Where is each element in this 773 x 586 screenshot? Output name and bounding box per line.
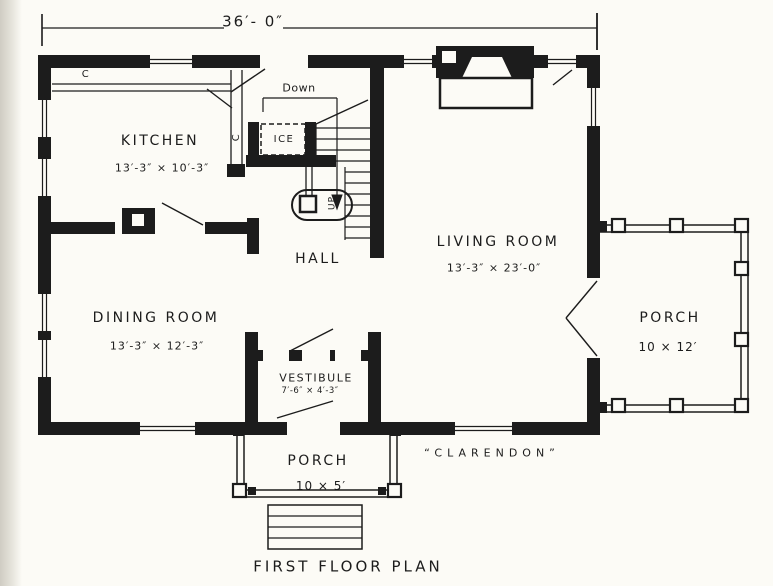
- vestibule-dims: 7′-6″ × 4′-3″: [281, 387, 338, 396]
- down-label: Down: [282, 83, 315, 94]
- dimension-line: [42, 13, 597, 50]
- vestibule-label: VESTIBULE: [279, 373, 353, 384]
- stair-break-line: [316, 100, 368, 124]
- hall-label: HALL: [295, 252, 341, 266]
- kitchen-dining-wall: [205, 222, 247, 234]
- house-name-caption: “CLARENDON”: [424, 448, 560, 459]
- vestibule-door-opening: [263, 350, 289, 361]
- window: [38, 159, 51, 196]
- porch-post: [233, 428, 244, 436]
- porch-post: [735, 333, 748, 346]
- porch-post: [233, 484, 246, 497]
- front-porch-label: PORCH: [287, 454, 348, 468]
- window: [38, 294, 51, 331]
- living-room-dims: 13′-3″ × 23′-0″: [447, 263, 541, 274]
- porch-post: [735, 262, 748, 275]
- porch-post: [735, 219, 748, 232]
- floor-plan-page: 36′- 0″ KITCHEN 13′-3″ × 10′-3″ C C Down…: [0, 0, 773, 586]
- porch-post: [388, 484, 401, 497]
- porch-post: [390, 428, 401, 436]
- kitchen-cupboard-label: C: [82, 70, 90, 80]
- dining-room-label: DINING ROOM: [93, 311, 220, 325]
- kitchen-dining-wall: [38, 222, 115, 234]
- porch-post: [670, 399, 683, 412]
- vestibule-wall-right: [368, 332, 381, 422]
- door-swing: [290, 329, 333, 351]
- porch-post: [378, 487, 386, 495]
- back-door-opening: [260, 55, 308, 68]
- door-swing: [231, 69, 265, 92]
- cellar-stair-arrow: [263, 98, 342, 209]
- stair-wall: [370, 68, 384, 258]
- porch-post: [670, 219, 683, 232]
- floor-plan-drawing: [0, 0, 773, 586]
- ice-label: ICE: [274, 135, 295, 145]
- hall-closet-label: C: [232, 133, 242, 141]
- front-porch-dims: 10 × 5′: [296, 480, 346, 492]
- window: [140, 422, 195, 435]
- hearth: [440, 78, 532, 108]
- porch-post: [612, 399, 625, 412]
- closet-wall-cap: [227, 164, 245, 177]
- fireplace-flue: [442, 51, 456, 63]
- hall-wall-stub: [247, 218, 259, 254]
- door-swing: [207, 89, 232, 108]
- up-label: UP: [329, 196, 338, 210]
- window: [404, 55, 432, 68]
- newel-post: [300, 196, 316, 212]
- kitchen-dims: 13′-3″ × 10′-3″: [115, 163, 209, 174]
- living-room-label: LIVING ROOM: [437, 235, 560, 249]
- window: [587, 88, 600, 126]
- window: [38, 100, 51, 137]
- front-door-opening: [287, 422, 340, 435]
- vestibule-wall-left: [245, 332, 258, 422]
- window: [455, 422, 512, 435]
- overall-dimension-label: 36′- 0″: [222, 15, 284, 30]
- porch-post: [598, 221, 607, 232]
- interior-walls: [38, 68, 384, 422]
- side-porch-dims: 10 × 12′: [639, 341, 698, 353]
- fireplace: [436, 46, 534, 108]
- door-swing: [162, 203, 203, 225]
- side-porch-label: PORCH: [639, 311, 700, 325]
- door-swing: [277, 401, 333, 418]
- porch-post: [598, 402, 607, 413]
- window: [548, 55, 576, 68]
- stairs: [292, 100, 370, 240]
- kitchen-label: KITCHEN: [121, 134, 199, 148]
- ice-box-jamb: [305, 122, 316, 156]
- window: [38, 340, 51, 377]
- dining-room-dims: 13′-3″ × 12′-3″: [110, 341, 204, 352]
- porch-post: [248, 487, 256, 495]
- chimney-flue: [132, 214, 144, 226]
- window: [150, 55, 192, 68]
- vestibule-door-opening: [335, 350, 361, 361]
- porch-post: [612, 219, 625, 232]
- ice-box-jamb: [248, 122, 259, 156]
- door-swing: [553, 70, 572, 85]
- plan-title: FIRST FLOOR PLAN: [253, 560, 442, 575]
- porch-post: [735, 399, 748, 412]
